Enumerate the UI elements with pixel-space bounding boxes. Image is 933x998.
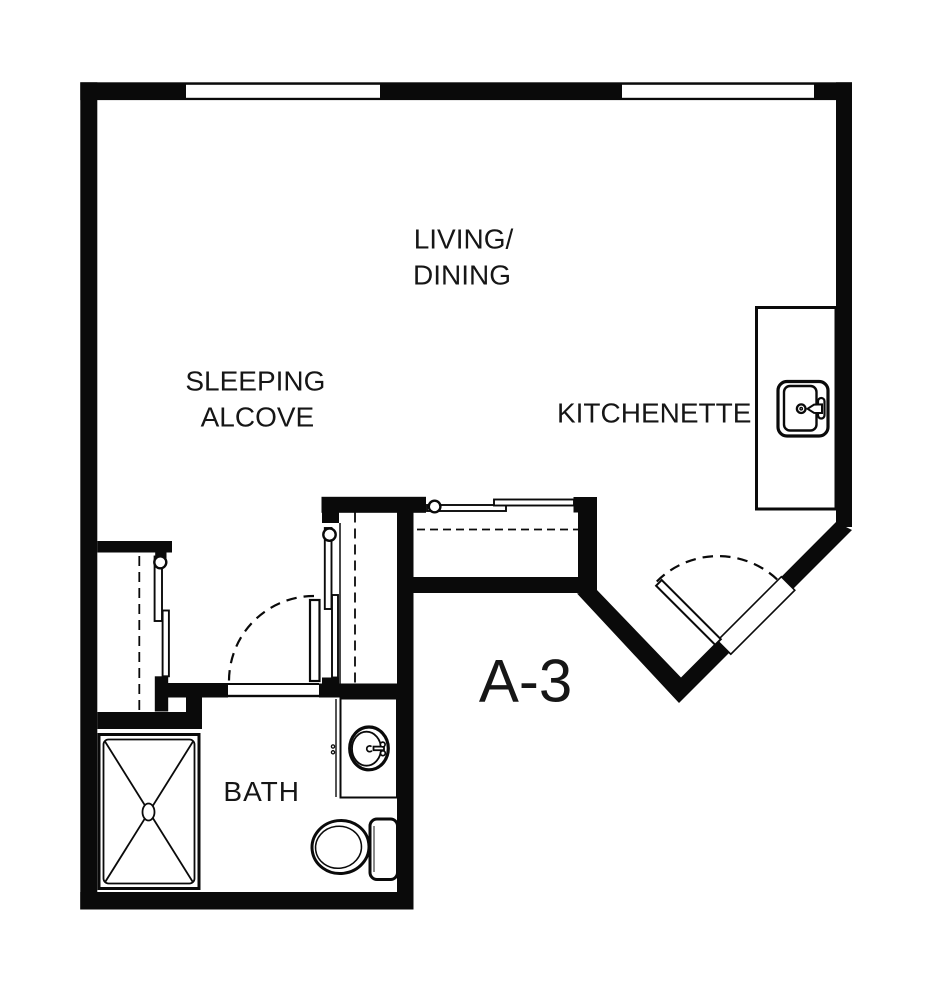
- svg-text:KITCHENETTE: KITCHENETTE: [557, 398, 751, 429]
- svg-text:DINING: DINING: [413, 259, 511, 290]
- svg-text:A-3: A-3: [479, 648, 572, 715]
- svg-text:BATH: BATH: [223, 776, 300, 807]
- svg-text:SLEEPING: SLEEPING: [185, 366, 325, 397]
- svg-text:LIVING/: LIVING/: [414, 224, 514, 255]
- svg-text:ALCOVE: ALCOVE: [201, 401, 315, 432]
